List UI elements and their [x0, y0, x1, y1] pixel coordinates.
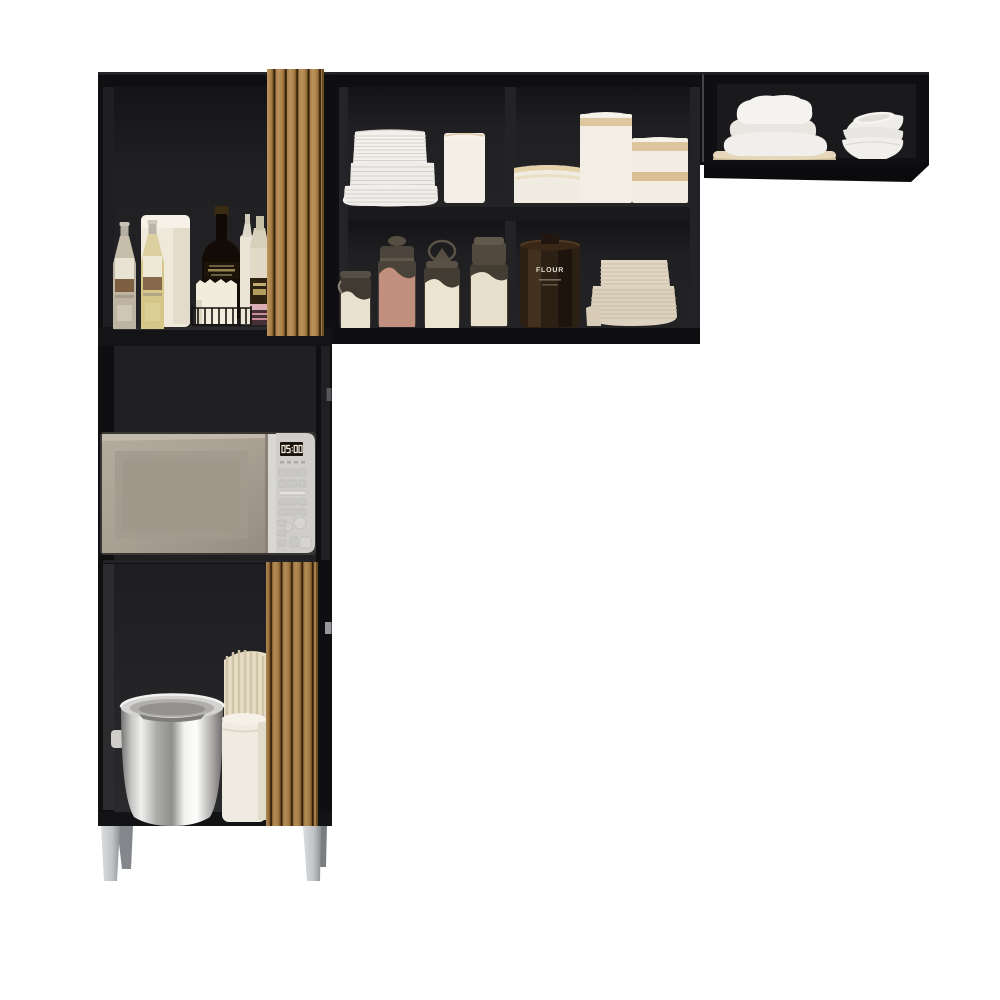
svg-text:FLOUR: FLOUR — [536, 267, 564, 274]
